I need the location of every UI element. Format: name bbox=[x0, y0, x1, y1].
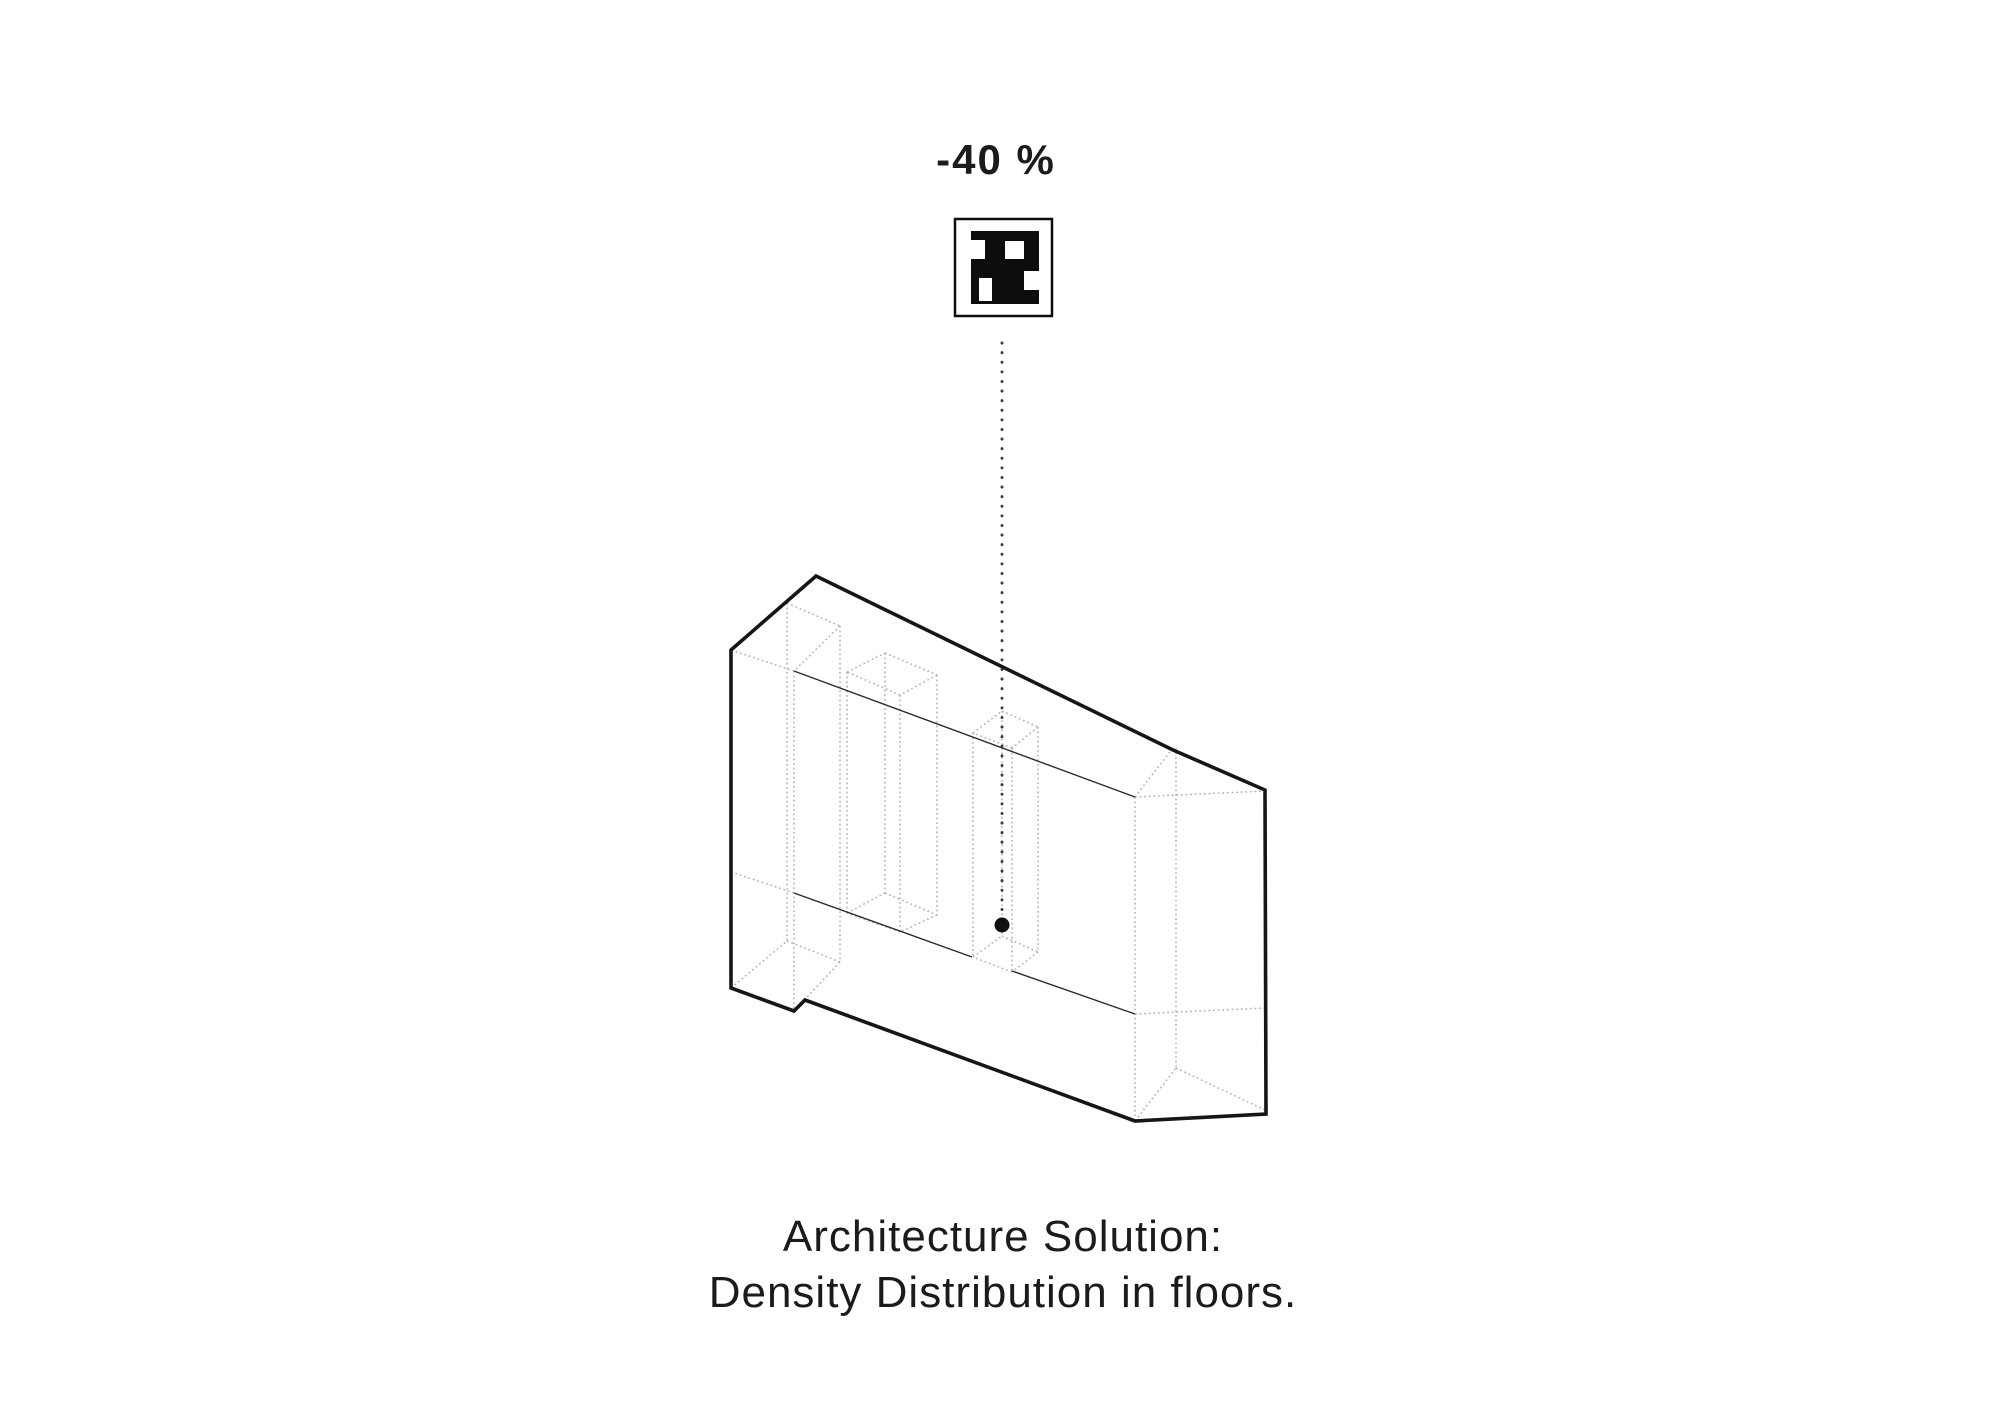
caption-line-2: Density Distribution in floors. bbox=[503, 1265, 1503, 1321]
hidden-edge bbox=[731, 872, 794, 893]
fiducial-marker-icon bbox=[955, 219, 1052, 316]
hidden-edge bbox=[1012, 727, 1038, 748]
marker-pattern-cell bbox=[1024, 271, 1039, 290]
hidden-edge bbox=[1012, 952, 1038, 972]
floor-edge-line bbox=[794, 671, 1135, 797]
hidden-edge bbox=[885, 893, 937, 915]
hidden-edges-group bbox=[731, 603, 1265, 1121]
hidden-edge bbox=[973, 711, 1002, 733]
marker-pattern-cell bbox=[979, 278, 992, 301]
hidden-edge bbox=[973, 733, 1012, 748]
diagram-canvas: -40 % Architecture Solution: Density Dis… bbox=[0, 0, 2000, 1414]
hidden-edge bbox=[885, 653, 937, 675]
marker-pattern-cell bbox=[971, 240, 985, 259]
hidden-edge bbox=[731, 941, 787, 988]
hidden-edge bbox=[731, 650, 794, 671]
marker-pattern-cell bbox=[1005, 241, 1024, 259]
hidden-edge bbox=[973, 936, 1002, 957]
hidden-edge bbox=[787, 941, 840, 962]
hidden-edge bbox=[847, 672, 900, 695]
floor-lines-group bbox=[794, 671, 1135, 1014]
floor-edge-line bbox=[794, 893, 972, 957]
caption-block: Architecture Solution: Density Distribut… bbox=[503, 1209, 1503, 1321]
hidden-edge bbox=[794, 626, 840, 671]
hidden-edge bbox=[900, 675, 937, 695]
hidden-edge bbox=[973, 957, 1012, 972]
building-outline bbox=[731, 576, 1266, 1121]
hidden-edge bbox=[1135, 1008, 1265, 1014]
hidden-edge bbox=[847, 913, 900, 932]
hidden-edge bbox=[787, 603, 840, 626]
isometric-building-diagram bbox=[0, 0, 2000, 1414]
hidden-edge bbox=[1002, 936, 1038, 952]
hidden-edge bbox=[847, 893, 885, 913]
hidden-edge bbox=[1135, 791, 1265, 797]
hidden-edge bbox=[1002, 711, 1038, 727]
target-point-dot bbox=[995, 918, 1010, 933]
hidden-edge bbox=[1135, 1068, 1176, 1121]
caption-line-1: Architecture Solution: bbox=[503, 1209, 1503, 1265]
floor-edge-line bbox=[1012, 971, 1135, 1014]
hidden-edge bbox=[900, 915, 937, 932]
hidden-edge bbox=[1176, 1068, 1265, 1110]
hidden-edge bbox=[1135, 748, 1173, 797]
hidden-edge bbox=[847, 653, 885, 672]
